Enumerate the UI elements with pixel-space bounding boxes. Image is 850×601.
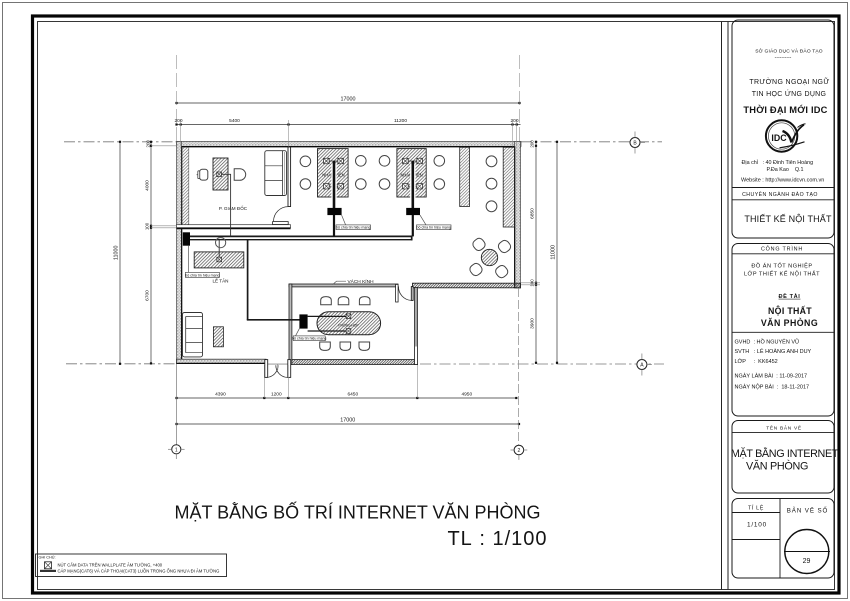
svg-text:IDC: IDC: [771, 133, 787, 143]
svg-text:bộ chia tín hiệu mạng: bộ chia tín hiệu mạng: [185, 273, 219, 277]
svg-text:TỈ LỆ: TỈ LỆ: [748, 504, 764, 512]
svg-text:Website : http://www.idcvn.com: Website : http://www.idcvn.com.vn: [741, 177, 824, 183]
svg-text:2: 2: [518, 448, 521, 454]
svg-text:SVTH : LÊ HOÀNG ANH DUY: SVTH : LÊ HOÀNG ANH DUY: [735, 347, 812, 355]
svg-text:200: 200: [146, 140, 151, 148]
svg-text:TRƯỜNG NGOẠI NGỮ: TRƯỜNG NGOẠI NGỮ: [749, 77, 829, 86]
svg-text:LỄ TÂN: LỄ TÂN: [213, 278, 229, 284]
svg-text:6450: 6450: [347, 392, 358, 398]
svg-text:GVHD : HỒ NGUYÊN VŨ: GVHD : HỒ NGUYÊN VŨ: [735, 338, 800, 346]
svg-text:TIN HỌC ỨNG DỤNG: TIN HỌC ỨNG DỤNG: [752, 89, 827, 98]
svg-text:200: 200: [510, 118, 518, 124]
svg-text:17000: 17000: [340, 418, 355, 424]
svg-text:VĂN PHÒNG: VĂN PHÒNG: [761, 317, 818, 328]
svg-text:29: 29: [803, 558, 811, 565]
svg-text:4950: 4950: [461, 392, 472, 398]
svg-text:1/100: 1/100: [747, 522, 767, 529]
svg-text:6850: 6850: [530, 208, 536, 219]
svg-text:ĐỒ ÁN TỐT NGHIỆP: ĐỒ ÁN TỐT NGHIỆP: [751, 261, 812, 269]
svg-text:17000: 17000: [341, 97, 356, 103]
svg-text:bộ chia tín hiệu mạng: bộ chia tín hiệu mạng: [292, 337, 326, 341]
svg-text:4000: 4000: [145, 180, 151, 191]
svg-text:200: 200: [530, 140, 535, 148]
svg-text:----------: ----------: [775, 55, 792, 61]
svg-text:GHI CHÚ:: GHI CHÚ:: [39, 554, 56, 559]
svg-text:Địa chỉ : 40 Đinh Tiên Hoàng: Địa chỉ : 40 Đinh Tiên Hoàng: [742, 159, 814, 166]
svg-text:LỚP THIẾT KẾ NỘI THẤT: LỚP THIẾT KẾ NỘI THẤT: [744, 270, 820, 277]
svg-text:SỞ GIÁO DỤC VÀ ĐÀO TẠO: SỞ GIÁO DỤC VÀ ĐÀO TẠO: [755, 48, 823, 55]
svg-text:VĂN PHÒNG: VĂN PHÒNG: [746, 460, 808, 473]
svg-text:MẶT BẰNG INTERNET: MẶT BẰNG INTERNET: [731, 447, 839, 460]
svg-text:200: 200: [174, 118, 182, 124]
svg-text:4390: 4390: [215, 392, 226, 398]
svg-text:TL : 1/100: TL : 1/100: [447, 528, 547, 550]
svg-text:PHÒNG HỌP: PHÒNG HỌP: [338, 322, 359, 327]
svg-text:NỘI THẤT: NỘI THẤT: [768, 305, 812, 316]
svg-text:5400: 5400: [229, 118, 240, 124]
svg-text:6700: 6700: [145, 290, 151, 301]
svg-text:VÁCH KÍNH: VÁCH KÍNH: [347, 278, 374, 285]
svg-text:bộ chia tín hiệu mạng: bộ chia tín hiệu mạng: [336, 226, 370, 230]
svg-text:P.Đa Kao Q.1: P.Đa Kao Q.1: [767, 167, 804, 173]
svg-text:CÔNG TRÌNH: CÔNG TRÌNH: [761, 246, 803, 253]
svg-text:NGÀY NỘP BÀI : 18-11-2017: NGÀY NỘP BÀI : 18-11-2017: [735, 383, 810, 390]
svg-text:100: 100: [145, 222, 150, 230]
svg-text:11000: 11000: [551, 245, 557, 260]
svg-text:NGÀY LÀM BÀI : 11-09-2017: NGÀY LÀM BÀI : 11-09-2017: [735, 372, 808, 379]
svg-text:CHUYÊN NGÀNH ĐÀO TẠO: CHUYÊN NGÀNH ĐÀO TẠO: [742, 190, 818, 198]
svg-text:ĐỀ TÀI: ĐỀ TÀI: [779, 293, 801, 300]
svg-text:11000: 11000: [114, 246, 120, 261]
svg-text:THIẾT KẾ NỘI THẤT: THIẾT KẾ NỘI THẤT: [744, 214, 832, 224]
svg-text:11200: 11200: [394, 118, 407, 124]
svg-text:P. GIÁM ĐỐC: P. GIÁM ĐỐC: [219, 205, 248, 211]
svg-text:NÚT CẮM DATA TRÊN WALLPLATE ÂM: NÚT CẮM DATA TRÊN WALLPLATE ÂM TƯỜNG, +4…: [58, 562, 163, 567]
svg-text:bộ chia tín hiệu mạng: bộ chia tín hiệu mạng: [417, 226, 451, 230]
svg-text:3900: 3900: [530, 318, 536, 329]
svg-text:MẶT BẰNG BỐ TRÍ INTERNET VĂN P: MẶT BẰNG BỐ TRÍ INTERNET VĂN PHÒNG: [174, 502, 540, 523]
svg-text:LỚP : KK6452: LỚP : KK6452: [735, 358, 778, 365]
svg-text:1200: 1200: [271, 392, 282, 398]
svg-text:THỜI ĐẠI MỚI IDC: THỜI ĐẠI MỚI IDC: [743, 104, 827, 115]
svg-text:1: 1: [175, 447, 178, 453]
svg-text:CÁP MẠNG(CAT6) VÀ CÁP THOẠI(CA: CÁP MẠNG(CAT6) VÀ CÁP THOẠI(CAT3) LUỒN T…: [58, 569, 220, 574]
svg-text:BẢN VẼ SỐ: BẢN VẼ SỐ: [787, 508, 828, 515]
